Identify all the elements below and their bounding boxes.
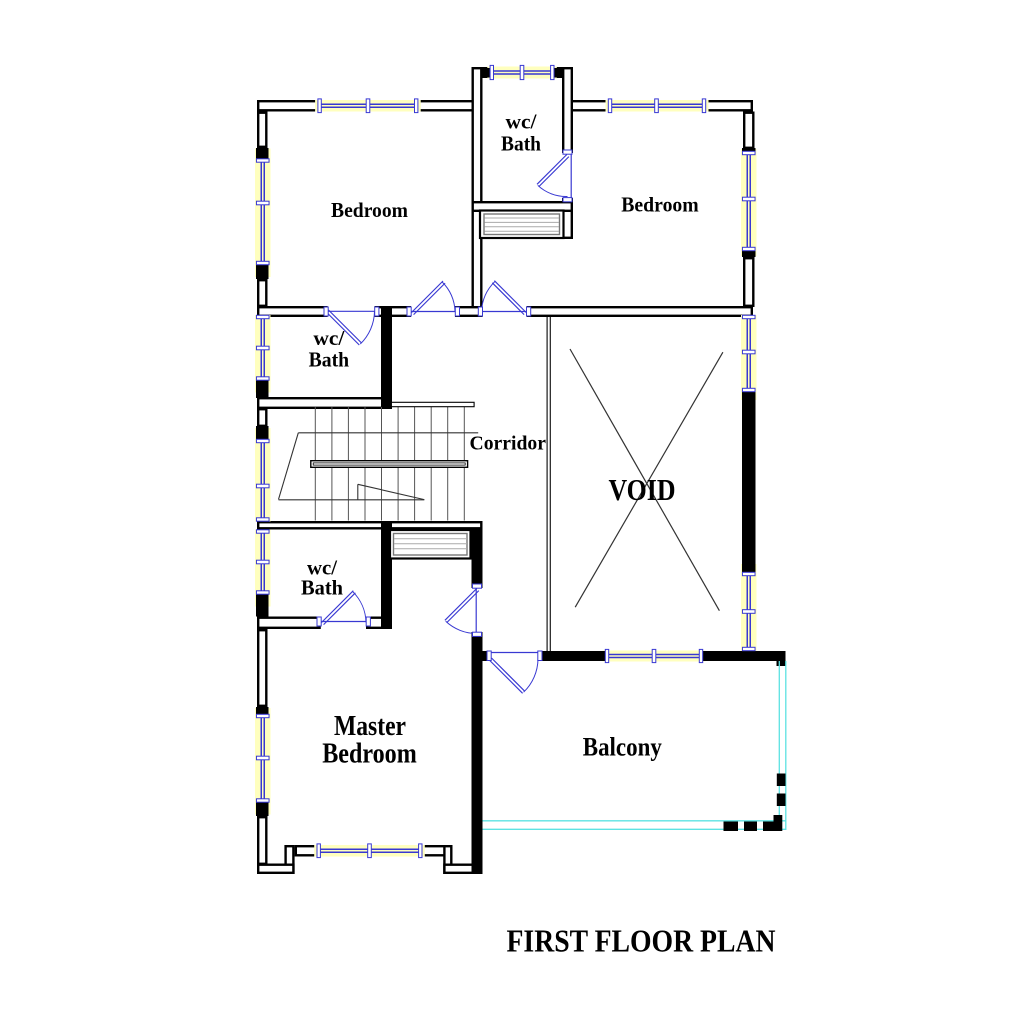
svg-text:FIRST FLOOR PLAN: FIRST FLOOR PLAN (507, 924, 776, 959)
svg-text:Bath: Bath (301, 576, 343, 600)
svg-text:Corridor: Corridor (470, 434, 547, 455)
svg-text:Bath: Bath (309, 348, 350, 372)
svg-text:Bedroom: Bedroom (621, 193, 699, 217)
svg-text:Balcony: Balcony (583, 732, 662, 762)
svg-text:Bedroom: Bedroom (331, 198, 408, 222)
svg-text:Master: Master (334, 711, 406, 742)
svg-text:wc/: wc/ (313, 326, 345, 350)
svg-text:VOID: VOID (609, 472, 676, 507)
svg-text:Bedroom: Bedroom (322, 739, 417, 770)
svg-text:wc/: wc/ (506, 110, 538, 134)
svg-text:Bath: Bath (501, 132, 541, 156)
